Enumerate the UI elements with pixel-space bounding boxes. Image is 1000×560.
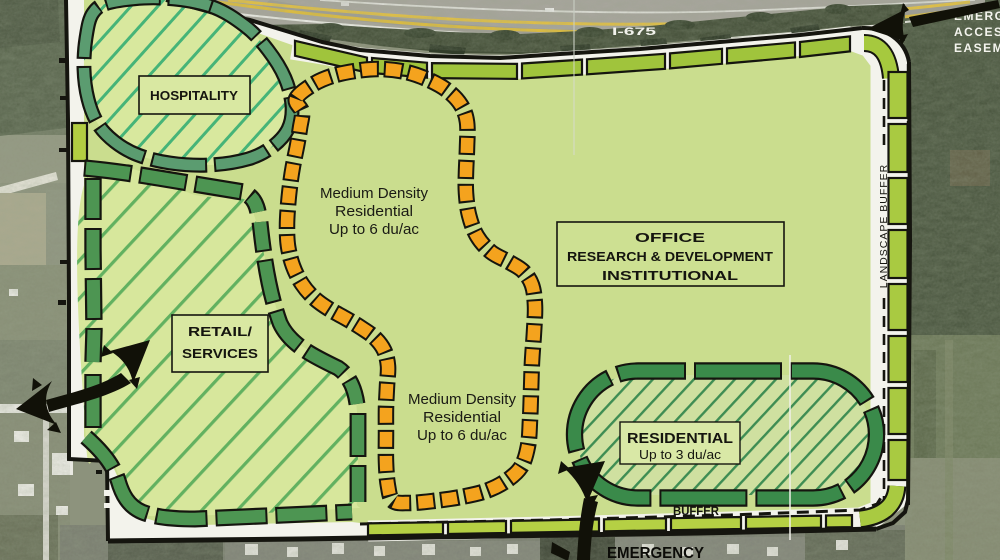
svg-text:EASEME: EASEME: [954, 41, 1000, 55]
svg-text:RESEARCH & DEVELOPMENT: RESEARCH & DEVELOPMENT: [567, 250, 773, 264]
svg-text:Medium Density: Medium Density: [408, 392, 517, 408]
svg-text:HOSPITALITY: HOSPITALITY: [150, 88, 238, 103]
svg-text:INSTITUTIONAL: INSTITUTIONAL: [602, 269, 739, 283]
svg-text:LANDSCAPE BUFFER: LANDSCAPE BUFFER: [878, 164, 890, 289]
svg-text:Up to 3 du/ac: Up to 3 du/ac: [639, 447, 722, 462]
svg-text:RETAIL/: RETAIL/: [188, 324, 252, 339]
svg-text:Up to 6 du/ac: Up to 6 du/ac: [417, 428, 507, 444]
svg-text:SERVICES: SERVICES: [182, 346, 258, 361]
svg-text:BUFFER: BUFFER: [673, 506, 720, 518]
svg-text:EMERGENCY: EMERGENCY: [607, 545, 704, 560]
svg-text:ACCESS: ACCESS: [954, 25, 1000, 39]
svg-text:RESIDENTIAL: RESIDENTIAL: [627, 430, 733, 447]
svg-text:Up to 6 du/ac: Up to 6 du/ac: [329, 222, 419, 238]
svg-text:Residential: Residential: [335, 204, 413, 220]
svg-text:I-675: I-675: [612, 26, 656, 38]
svg-text:Residential: Residential: [423, 410, 501, 426]
svg-text:Medium Density: Medium Density: [320, 186, 429, 202]
svg-text:OFFICE: OFFICE: [635, 231, 705, 245]
